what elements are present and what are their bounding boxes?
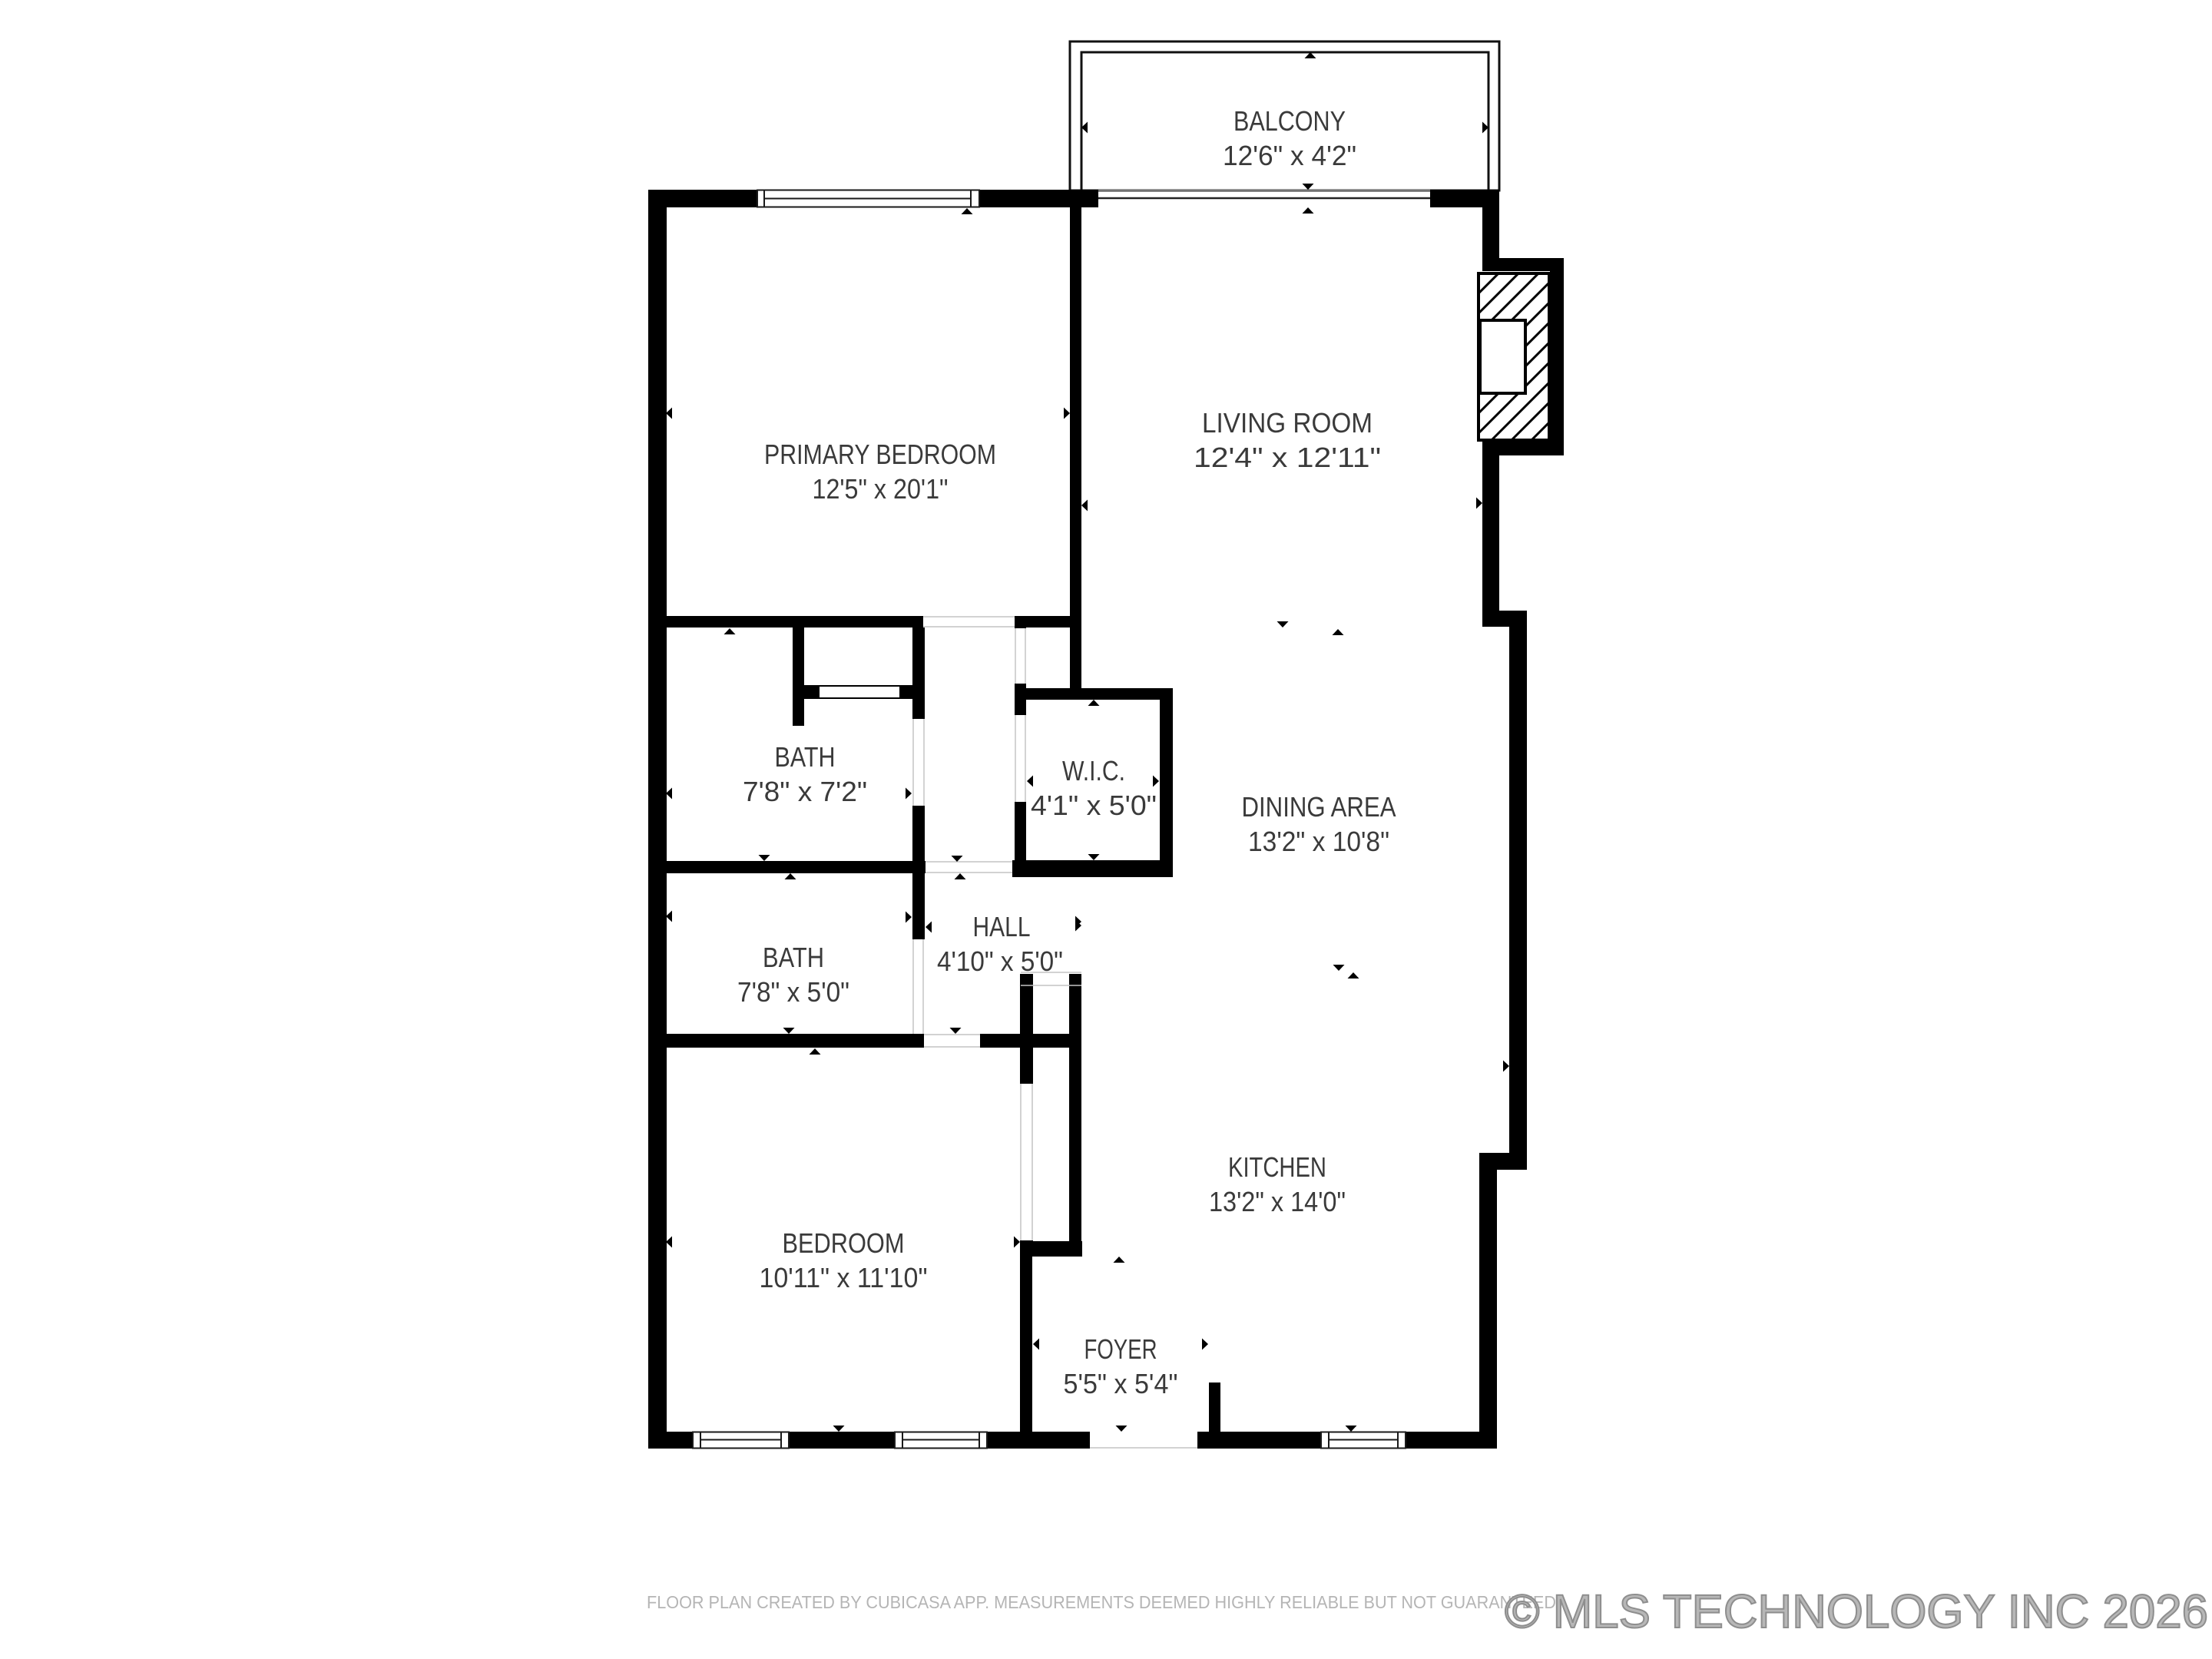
svg-text:BALCONY: BALCONY <box>1233 105 1346 137</box>
svg-text:DINING AREA: DINING AREA <box>1242 791 1396 823</box>
svg-text:KITCHEN: KITCHEN <box>1228 1151 1326 1183</box>
svg-text:10'11" x 11'10": 10'11" x 11'10" <box>760 1262 928 1293</box>
svg-text:PRIMARY BEDROOM: PRIMARY BEDROOM <box>764 439 996 470</box>
svg-text:7'8" x 5'0": 7'8" x 5'0" <box>737 976 849 1008</box>
svg-text:5'5" x 5'4": 5'5" x 5'4" <box>1064 1368 1178 1399</box>
svg-text:12'6" x 4'2": 12'6" x 4'2" <box>1223 140 1356 171</box>
svg-text:© MLS TECHNOLOGY INC 2026: © MLS TECHNOLOGY INC 2026 <box>1505 1585 2208 1638</box>
svg-text:12'4" x 12'11": 12'4" x 12'11" <box>1194 442 1381 473</box>
svg-text:FOYER: FOYER <box>1084 1333 1157 1365</box>
svg-text:W.I.C.: W.I.C. <box>1062 755 1125 786</box>
svg-text:13'2" x 14'0": 13'2" x 14'0" <box>1209 1186 1346 1217</box>
svg-text:HALL: HALL <box>973 911 1031 942</box>
svg-text:FLOOR PLAN CREATED BY CUBICASA: FLOOR PLAN CREATED BY CUBICASA APP. MEAS… <box>647 1592 1556 1612</box>
svg-text:13'2" x 10'8": 13'2" x 10'8" <box>1248 826 1389 857</box>
svg-text:4'10" x 5'0": 4'10" x 5'0" <box>937 945 1063 977</box>
svg-text:7'8" x 7'2": 7'8" x 7'2" <box>743 776 867 807</box>
svg-text:BEDROOM: BEDROOM <box>783 1227 905 1259</box>
svg-text:12'5" x 20'1": 12'5" x 20'1" <box>813 473 949 505</box>
svg-text:LIVING ROOM: LIVING ROOM <box>1202 407 1373 439</box>
svg-text:BATH: BATH <box>775 741 836 773</box>
svg-text:BATH: BATH <box>763 942 824 973</box>
svg-text:4'1" x 5'0": 4'1" x 5'0" <box>1031 790 1157 821</box>
